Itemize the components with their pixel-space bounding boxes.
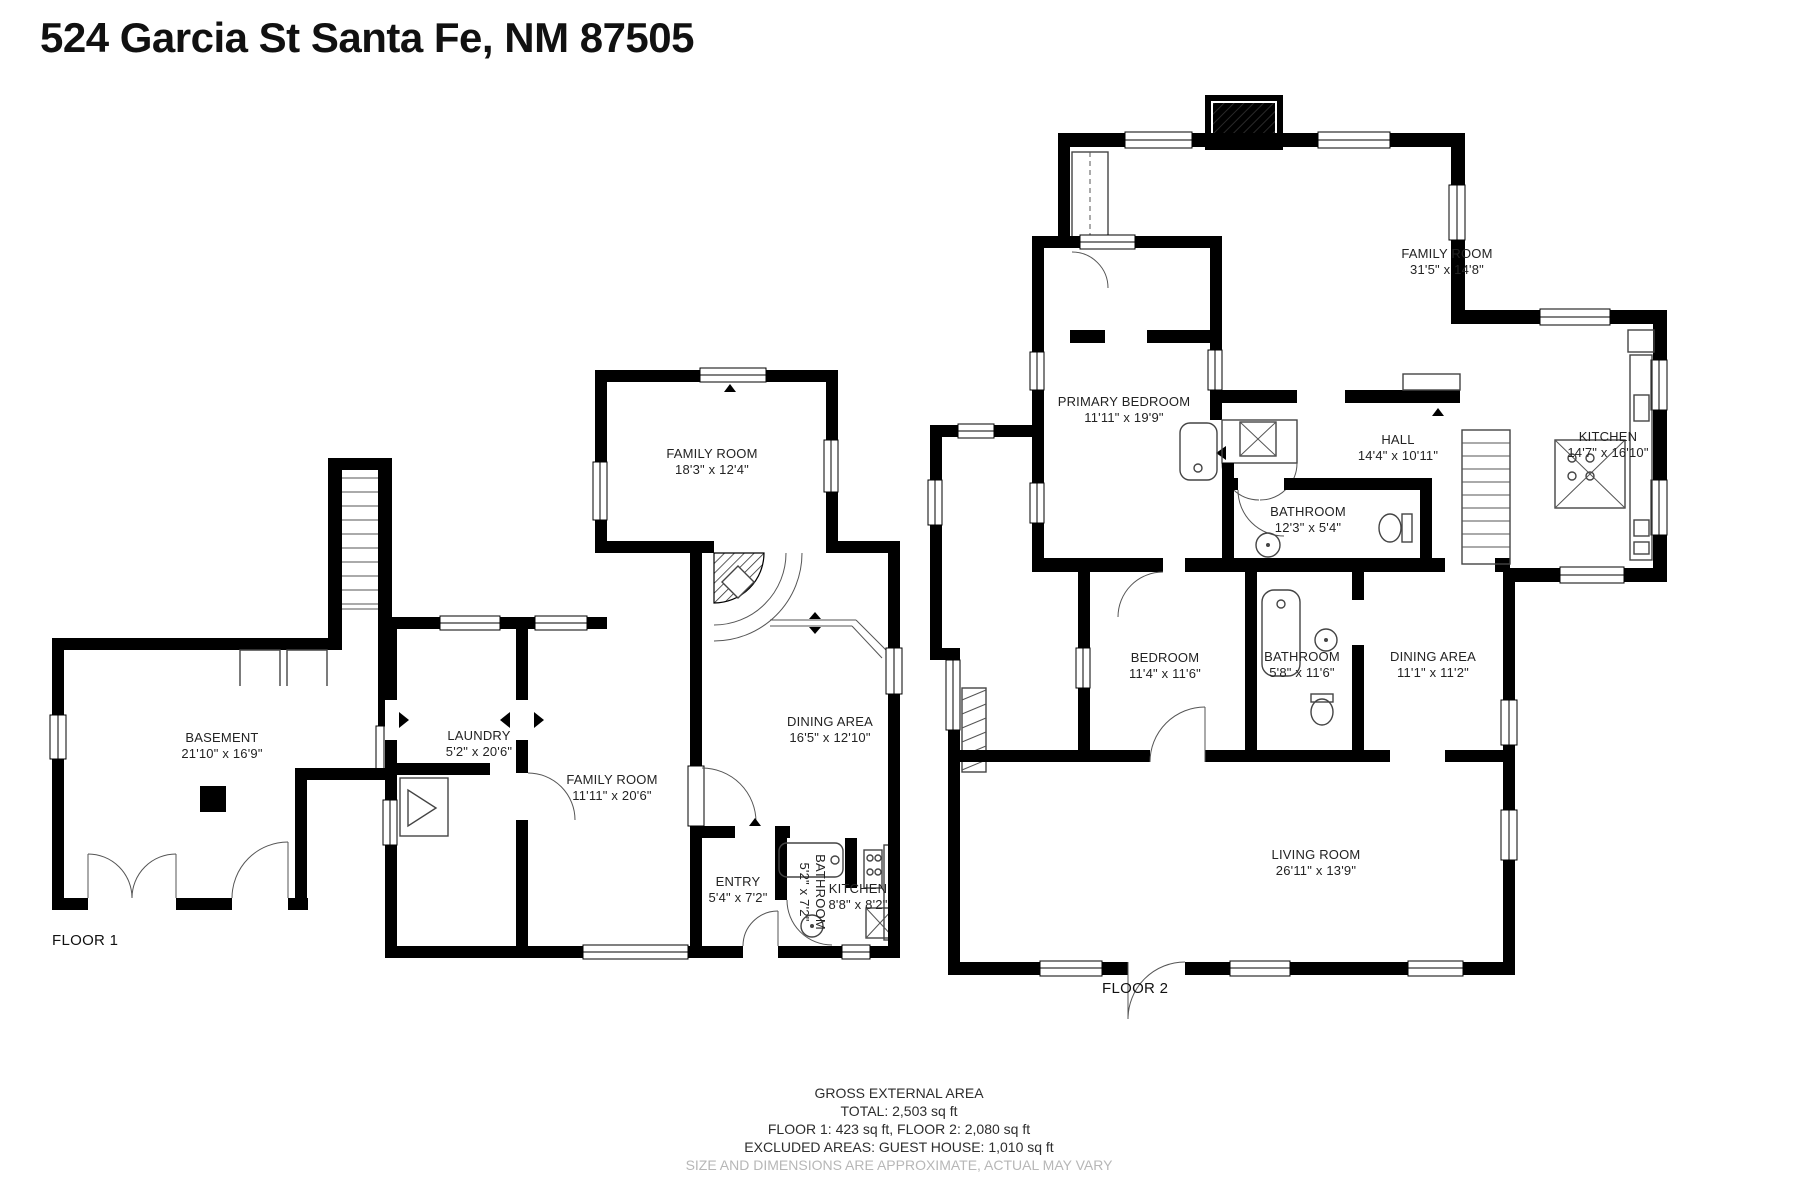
area-summary: GROSS EXTERNAL AREA TOTAL: 2,503 sq ft F… xyxy=(686,1084,1113,1174)
room-label-basement: BASEMENT 21'10" x 16'9" xyxy=(181,730,262,762)
door-arc xyxy=(1118,572,1163,617)
room-label-floor2-bathroom: BATHROOM 5'8" x 11'6" xyxy=(1264,649,1340,681)
shower-icon xyxy=(1180,423,1217,480)
room-label-guest-kitchen: KITCHEN 8'8" x 8'2" xyxy=(828,881,887,913)
floorplan-drawing xyxy=(0,0,1800,1200)
floor2-label: FLOOR 2 xyxy=(1102,980,1168,997)
door-arc xyxy=(702,768,756,822)
door xyxy=(232,842,288,910)
kiva-fireplace xyxy=(714,553,802,641)
total-area: TOTAL: 2,503 sq ft xyxy=(686,1102,1113,1120)
room-label-hall-bathroom: BATHROOM 12'3" x 5'4" xyxy=(1270,504,1346,536)
room-label-guest-dining-area: DINING AREA 16'5" x 12'10" xyxy=(787,714,873,746)
entry-door xyxy=(743,911,778,958)
room-label-floor2-family-room: FAMILY ROOM 31'5" x 14'8" xyxy=(1401,246,1492,278)
excluded-areas: EXCLUDED AREAS: GUEST HOUSE: 1,010 sq ft xyxy=(686,1138,1113,1156)
floor-areas: FLOOR 1: 423 sq ft, FLOOR 2: 2,080 sq ft xyxy=(686,1120,1113,1138)
room-label-floor2-dining-area: DINING AREA 11'1" x 11'2" xyxy=(1390,649,1476,681)
sink-icon xyxy=(1315,629,1337,651)
room-label-floor2-kitchen: KITCHEN 14'7" x 16'10" xyxy=(1567,429,1648,461)
water-heater-icon xyxy=(400,778,448,836)
support-column xyxy=(200,786,226,812)
room-label-guest-family-room: FAMILY ROOM 11'11" x 20'6" xyxy=(566,772,657,804)
storage-shelf xyxy=(240,650,280,686)
double-door xyxy=(88,854,176,910)
floor2-plan xyxy=(928,95,1667,1019)
beam-line xyxy=(770,612,888,658)
basement-plan xyxy=(50,458,392,910)
room-label-guest-family-room-upper: FAMILY ROOM 18'3" x 12'4" xyxy=(666,446,757,478)
floor1-label: FLOOR 1 xyxy=(52,932,118,949)
room-label-living-room: LIVING ROOM 26'11" x 13'9" xyxy=(1272,847,1361,879)
room-label-hall: HALL 14'4" x 10'11" xyxy=(1358,432,1438,464)
toilet-icon xyxy=(1379,514,1412,542)
disclaimer: SIZE AND DIMENSIONS ARE APPROXIMATE, ACT… xyxy=(686,1156,1113,1174)
closet xyxy=(1072,152,1108,288)
staircase xyxy=(328,458,392,650)
room-label-bedroom: BEDROOM 11'4" x 11'6" xyxy=(1129,650,1201,682)
floorplan-page: 524 Garcia St Santa Fe, NM 87505 xyxy=(0,0,1800,1200)
storage-shelf xyxy=(287,650,327,686)
room-label-primary-bedroom: PRIMARY BEDROOM 11'11" x 19'9" xyxy=(1058,394,1191,426)
gross-area-heading: GROSS EXTERNAL AREA xyxy=(686,1084,1113,1102)
room-label-guest-bathroom: BATHROOM 5'2" x 7'2" xyxy=(796,854,828,930)
room-label-entry: ENTRY 5'4" x 7'2" xyxy=(708,874,767,906)
cased-opening xyxy=(1403,374,1460,390)
toilet-icon xyxy=(1311,694,1333,725)
room-label-laundry: LAUNDRY 5'2" x 20'6" xyxy=(446,728,512,760)
sink-icon xyxy=(1256,533,1280,557)
staircase xyxy=(1462,430,1510,564)
